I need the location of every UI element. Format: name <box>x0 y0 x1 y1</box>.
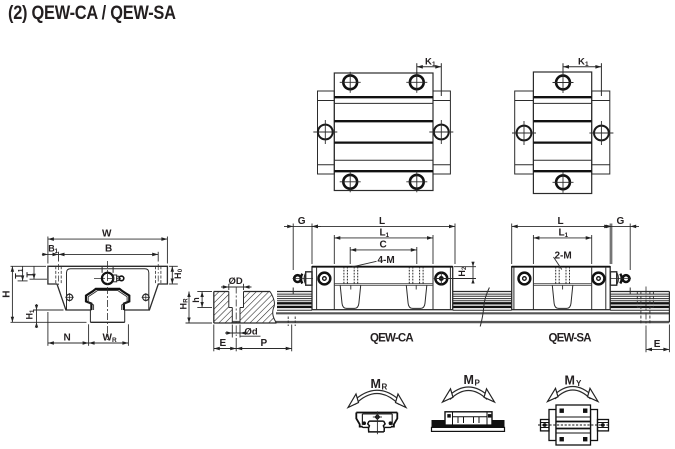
svg-text:M: M <box>371 377 381 391</box>
svg-text:B: B <box>105 244 112 255</box>
svg-text:T: T <box>25 272 35 278</box>
svg-text:2-M: 2-M <box>555 250 572 261</box>
svg-text:P: P <box>261 338 268 349</box>
svg-text:E: E <box>220 338 227 349</box>
svg-text:0: 0 <box>178 268 184 272</box>
svg-text:ØD: ØD <box>229 276 243 287</box>
svg-text:P: P <box>475 379 481 388</box>
svg-text:L: L <box>558 216 564 227</box>
svg-text:G: G <box>617 216 625 227</box>
svg-text:R: R <box>112 337 117 344</box>
svg-text:T: T <box>14 273 24 279</box>
svg-text:H: H <box>1 290 12 297</box>
svg-text:W: W <box>102 228 112 239</box>
svg-text:E: E <box>654 339 661 350</box>
svg-text:Ød: Ød <box>245 327 258 338</box>
svg-text:K: K <box>425 57 432 68</box>
svg-text:1: 1 <box>55 249 59 255</box>
svg-text:1: 1 <box>565 232 569 239</box>
svg-text:H: H <box>457 270 467 277</box>
svg-text:H: H <box>173 273 183 280</box>
svg-text:1: 1 <box>19 268 25 272</box>
svg-text:QEW-SA: QEW-SA <box>549 333 592 345</box>
svg-text:N: N <box>64 333 71 344</box>
svg-text:C: C <box>380 240 387 251</box>
svg-text:1: 1 <box>432 61 436 68</box>
svg-text:H: H <box>179 303 189 310</box>
svg-text:4-M: 4-M <box>378 255 395 266</box>
svg-text:1: 1 <box>386 232 390 239</box>
svg-text:M: M <box>565 374 575 388</box>
svg-text:(2) QEW-CA / QEW-SA: (2) QEW-CA / QEW-SA <box>8 1 176 23</box>
svg-text:L: L <box>379 216 385 227</box>
svg-text:QEW-CA: QEW-CA <box>370 333 413 345</box>
svg-text:R: R <box>184 298 190 303</box>
svg-text:K: K <box>578 57 585 68</box>
svg-text:1: 1 <box>585 61 589 68</box>
svg-text:W: W <box>103 333 113 344</box>
svg-text:M: M <box>464 373 474 387</box>
svg-text:h: h <box>191 297 201 303</box>
svg-text:G: G <box>298 216 306 227</box>
